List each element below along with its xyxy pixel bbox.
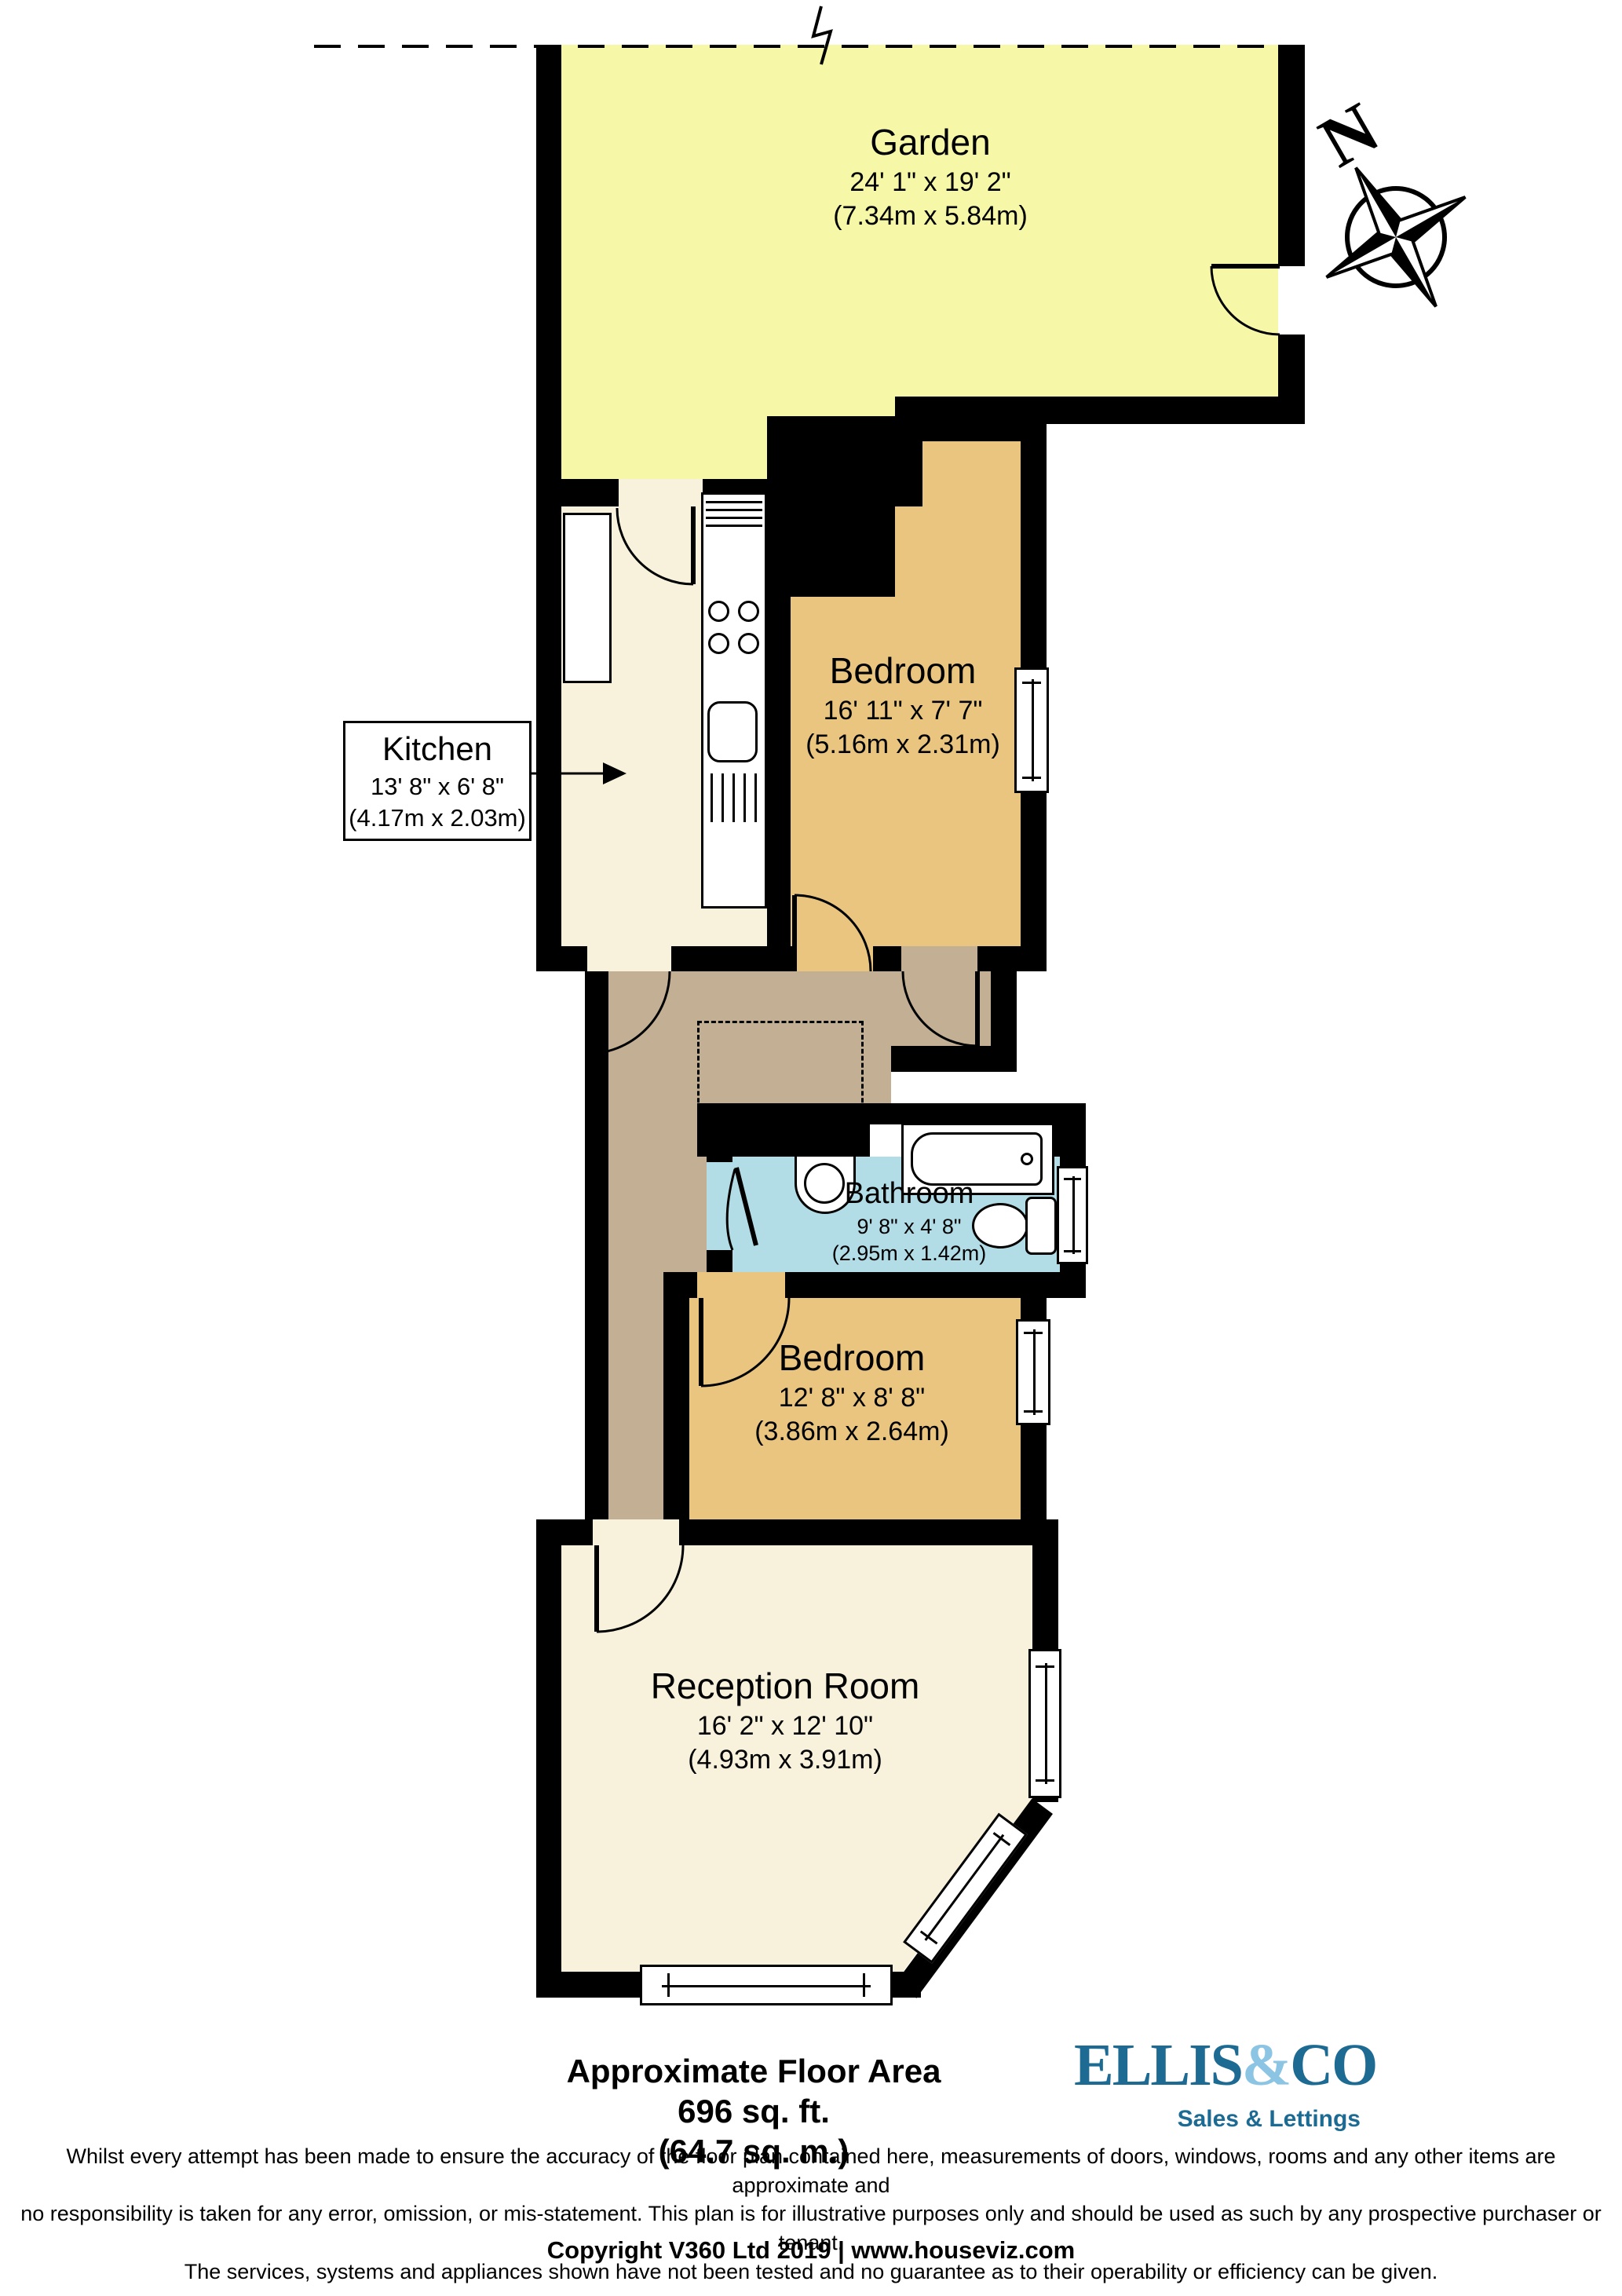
logo-ampersand: & [1242,2032,1290,2098]
bedroom2-label: Bedroom 12' 8" x 8' 8" (3.86m x 2.64m) [754,1335,949,1450]
wall-bedroom1-top [767,416,1046,441]
disclaimer-text: Whilst every attempt has been made to en… [18,2142,1604,2287]
window-frame-tick [1064,1250,1081,1252]
kitchen-sink [707,701,758,762]
agency-logo: ELLIS&CO Sales & Lettings [1074,2035,1361,2133]
door-gap-hallext [901,946,977,971]
reception-label: Reception Room 16' 2" x 12' 10" (4.93m x… [651,1663,920,1778]
wall-garden-right-top [1278,45,1305,266]
wall-bedroom2-left [663,1298,689,1519]
counter-drainer-line [706,501,762,503]
agency-logo-wordmark: ELLIS&CO [1074,2035,1361,2095]
bathtub-drain [1021,1153,1033,1165]
room-name: Bathroom [832,1175,987,1213]
window-frame-tick [1036,1779,1054,1782]
room-name: Garden [833,119,1028,166]
window-frame-tick [863,1973,865,1996]
compass-icon [1287,128,1506,347]
room-dims-imperial: 12' 8" x 8' 8" [754,1381,949,1416]
floor-area-title: Approximate Floor Area [567,2051,941,2091]
bedroom2-window [1016,1319,1050,1425]
room-name: Bedroom [806,648,1000,694]
room-dims-imperial: 24' 1" x 19' 2" [833,166,1028,200]
kitchen-counter [701,492,767,909]
room-dims-imperial: 16' 2" x 12' 10" [651,1709,920,1744]
bath-recess [870,1124,901,1157]
logo-part1: ELLIS [1074,2032,1242,2098]
window-frame-tick [1064,1178,1081,1180]
sink-drainer-line [711,773,713,822]
door-gap-bedroom2 [697,1272,785,1298]
bathroom-window [1057,1166,1088,1264]
window-frame-tick [667,1973,670,1996]
floorplan-page: { "compass": { "label": "N" }, "rooms": … [0,0,1622,2296]
hob-burner-icon [708,601,729,622]
wall-kitchen-bedroom1 [767,479,791,971]
room-dims-metric: (4.93m x 3.91m) [651,1743,920,1778]
reception-right-window [1028,1649,1061,1798]
window-frame-tick [1022,777,1041,779]
reception-bottom-window [640,1965,893,2005]
room-name: Kitchen [347,728,528,771]
garden-label: Garden 24' 1" x 19' 2" (7.34m x 5.84m) [833,119,1028,234]
room-dims-metric: (3.86m x 2.64m) [754,1415,949,1450]
hallway-cupboard-outline [697,1021,864,1131]
window-glass-line [1032,679,1034,781]
kitchen-worktop [563,513,612,683]
window-frame-tick [1024,1332,1043,1334]
hallway-floor-4 [608,1272,663,1519]
hallway-floor-3 [608,1131,707,1272]
window-glass-line [662,1985,870,1987]
counter-drainer-line [706,517,762,519]
wall-hallext-bottom [891,1046,1017,1072]
counter-drainer-line [706,509,762,511]
window-frame-tick [1024,1410,1043,1413]
hob-burner-icon [738,633,759,654]
room-dims-imperial: 9' 8" x 4' 8" [832,1213,987,1241]
wall-reception-left [536,1519,561,1998]
room-dims-metric: (7.34m x 5.84m) [833,199,1028,234]
sink-drainer-line [732,773,735,822]
room-name: Bedroom [754,1335,949,1381]
bedroom1-window [1014,667,1049,793]
sink-drainer-line [743,773,746,822]
wall-hallext-right [991,971,1017,1046]
window-glass-line [1033,1329,1036,1414]
window-frame-tick [1022,682,1041,684]
door-gap-reception [593,1519,679,1545]
room-dims-metric: (4.17m x 2.03m) [347,803,528,834]
compass-north-label: N [1306,87,1392,183]
toilet-cistern [1025,1197,1057,1255]
bedroom1-label: Bedroom 16' 11" x 7' 7" (5.16m x 2.31m) [806,648,1000,762]
counter-drainer-line [706,525,762,527]
room-name: Reception Room [651,1663,920,1709]
room-dims-imperial: 13' 8" x 6' 8" [347,771,528,803]
wall-hallway-left [585,971,608,1519]
room-dims-imperial: 16' 11" x 7' 7" [806,694,1000,729]
window-frame-tick [1036,1665,1054,1668]
sink-drainer-line [721,773,724,822]
room-dims-metric: (5.16m x 2.31m) [806,728,1000,762]
wall-garden-bottom-stub [895,397,922,506]
sink-drainer-line [754,773,757,822]
window-glass-line [1072,1176,1075,1255]
floor-area-sqft: 696 sq. ft. [567,2091,941,2131]
door-gap-bathroom [707,1162,732,1250]
logo-part2: CO [1290,2032,1376,2098]
door-gap-garden-kitchen [619,479,703,506]
bathroom-label: Bathroom 9' 8" x 4' 8" (2.95m x 1.42m) [832,1175,987,1267]
kitchen-label: Kitchen 13' 8" x 6' 8" (4.17m x 2.03m) [343,721,532,841]
door-gap-kitchen-hall [587,946,671,971]
disclaimer-line: Whilst every attempt has been made to en… [18,2142,1604,2199]
copyright-text: Copyright V360 Ltd 2019 | www.houseviz.c… [547,2236,1075,2265]
wall-left-main [536,45,561,971]
room-dims-metric: (2.95m x 1.42m) [832,1240,987,1267]
door-gap-bedroom1 [795,946,873,971]
window-glass-line [1045,1663,1047,1785]
hob-burner-icon [708,633,729,654]
agency-logo-tagline: Sales & Lettings [1074,2106,1361,2133]
hob-burner-icon [738,601,759,622]
